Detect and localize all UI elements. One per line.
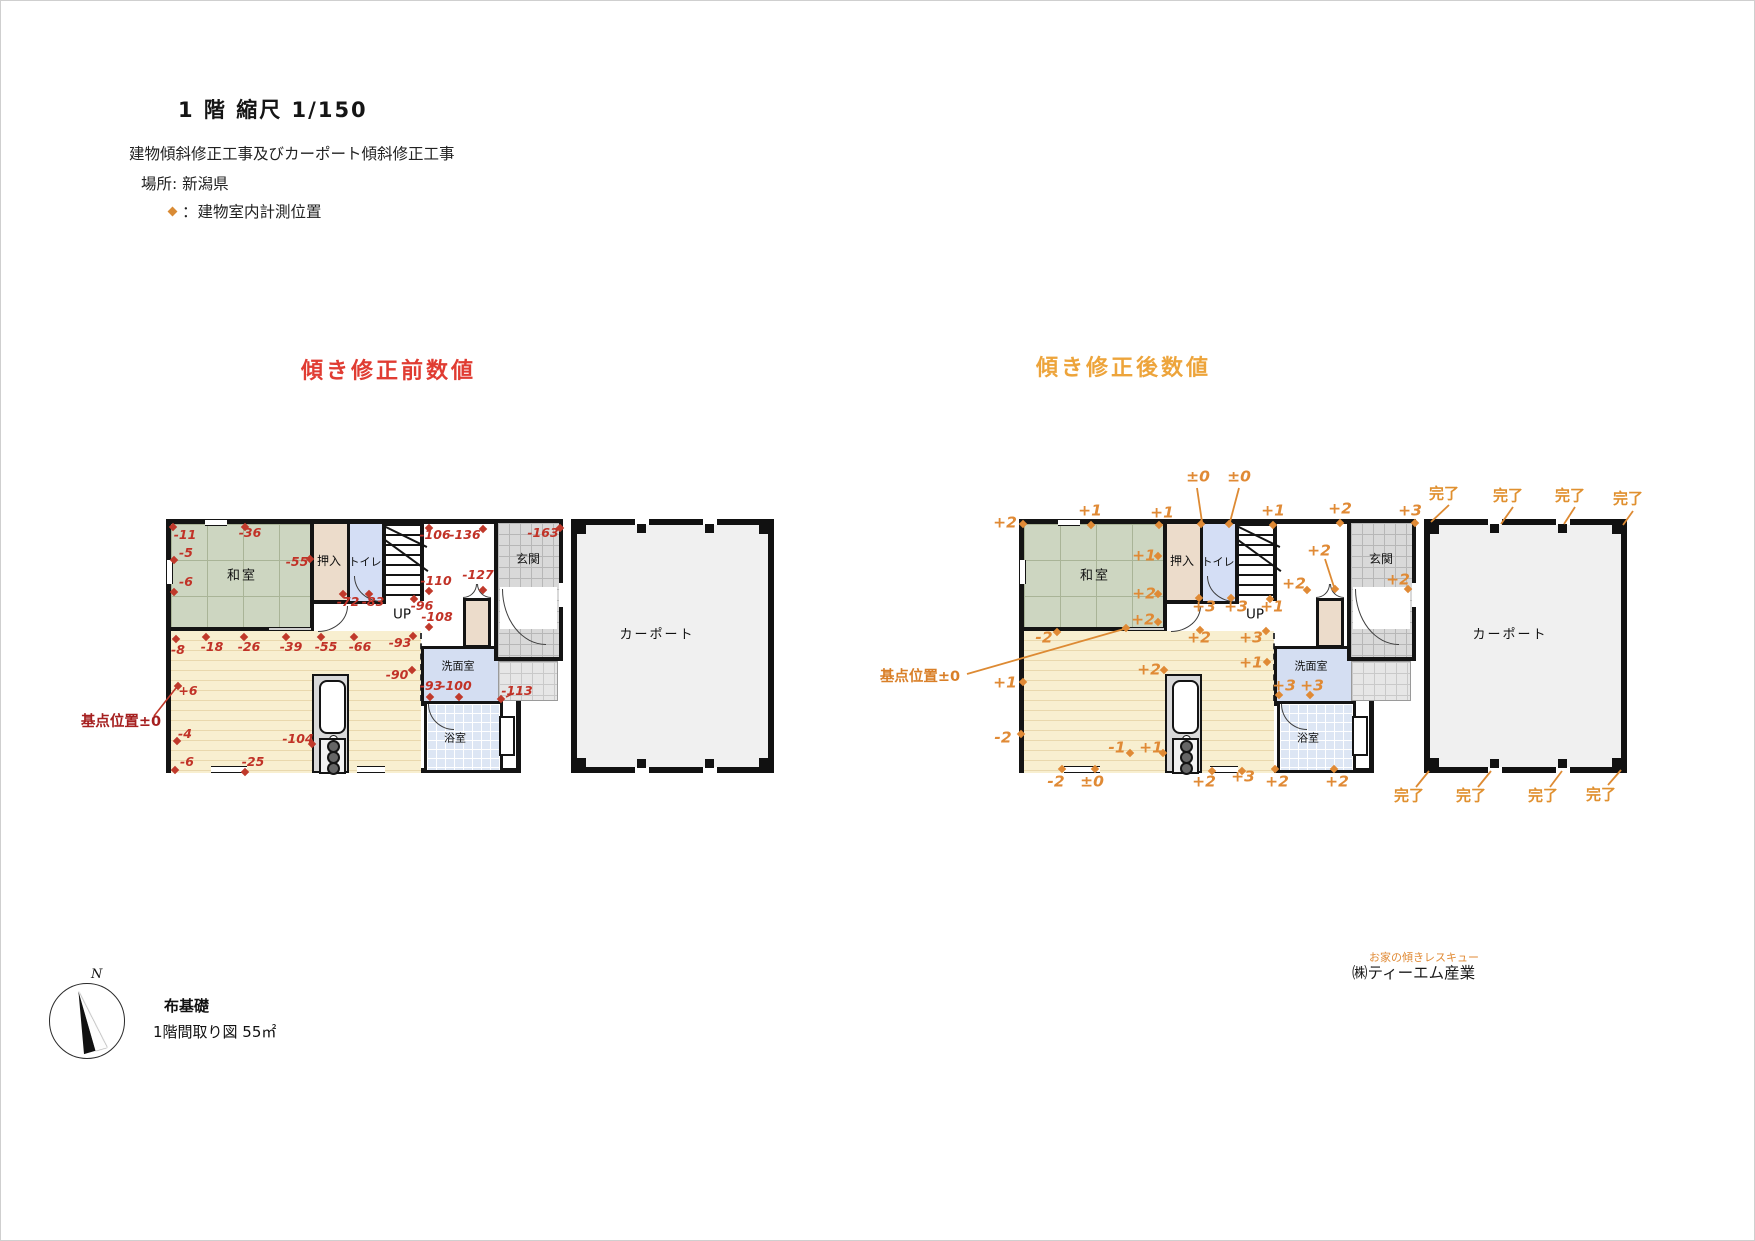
measurement-label: +1: [1078, 503, 1102, 519]
status-label: 完了: [1394, 789, 1424, 804]
measurement-point: [1225, 520, 1233, 528]
measurement-point: [1262, 627, 1270, 635]
measurement-label: -93: [389, 637, 412, 650]
before-plan-title: 傾き修正前数値: [301, 353, 476, 385]
measurement-label: +1: [1260, 599, 1284, 615]
measurement-label: -8: [171, 644, 185, 657]
measurement-point: [1126, 749, 1134, 757]
measurement-label: ±0: [1227, 469, 1251, 485]
north-label: N: [91, 967, 102, 982]
status-label: 完了: [1613, 492, 1643, 507]
measurement-label: -1: [1108, 740, 1125, 756]
plan-annotations: 和室押入トイレUP玄関洗面室浴室カーポート-11-36-5-55-6-106-1…: [166, 519, 776, 773]
measurement-label: -55: [286, 556, 309, 569]
measurement-label: -39: [280, 641, 303, 654]
status-label: 完了: [1493, 489, 1523, 504]
measurement-label: -163: [527, 527, 558, 540]
measurement-point: [426, 693, 434, 701]
measurement-label: +2: [1307, 543, 1331, 559]
measurement-label: +3: [1300, 678, 1324, 694]
measurement-label: -2: [994, 730, 1011, 746]
measurement-label: +1: [993, 675, 1017, 691]
measurement-label: -6: [180, 756, 194, 769]
room-label: 浴室: [444, 733, 466, 744]
measurement-point: [408, 666, 416, 674]
measurement-point: [1303, 586, 1311, 594]
stairs-up-label: UP: [393, 608, 411, 622]
room-label: 玄関: [1369, 553, 1393, 565]
measurement-point: [171, 766, 179, 774]
measurement-point: [1154, 618, 1162, 626]
measurement-point: [1087, 521, 1095, 529]
room-label: 玄関: [516, 553, 540, 565]
measurement-label: +1: [1261, 503, 1285, 519]
measurement-point: [1197, 520, 1205, 528]
measurement-label: -106: [419, 529, 450, 542]
legend-text: ：建物室内計測位置: [182, 200, 322, 222]
measurement-point: [479, 586, 487, 594]
room-label: 和室: [1080, 570, 1110, 583]
measurement-label: -100: [440, 680, 471, 693]
room-label: トイレ: [349, 557, 382, 568]
room-label: 洗面室: [1295, 661, 1328, 672]
measurement-label: +2: [1192, 774, 1216, 790]
measurement-label: +3: [1239, 630, 1263, 646]
measurement-label: +1: [1150, 505, 1174, 521]
measurement-point: [1269, 521, 1277, 529]
measurement-label: +3: [1398, 503, 1422, 519]
measurement-label: -18: [201, 641, 224, 654]
measurement-label: -26: [238, 641, 261, 654]
legend: ：建物室内計測位置: [169, 200, 322, 222]
measurement-point: [1053, 628, 1061, 636]
measurement-point: [1160, 666, 1168, 674]
sheet-title: 1 階 縮尺 1/150: [178, 94, 368, 124]
measurement-label: -66: [349, 641, 372, 654]
measurement-label: -127: [462, 569, 493, 582]
measurement-point: [241, 768, 249, 776]
measurement-label: -2: [1035, 630, 1052, 646]
room-label: カーポート: [619, 629, 694, 642]
status-label: 完了: [1528, 789, 1558, 804]
measurement-point: [170, 588, 178, 596]
measurement-label: +2: [1328, 501, 1352, 517]
measurement-label: +1: [1239, 655, 1263, 671]
measurement-label: -113: [501, 685, 532, 698]
after-plan-title: 傾き修正後数値: [1036, 350, 1211, 382]
measurement-label: +2: [1131, 612, 1155, 628]
measurement-label: +3: [1272, 678, 1296, 694]
measurement-label: +1: [1132, 548, 1156, 564]
leader-line: [1197, 488, 1202, 522]
measurement-label: +2: [1265, 774, 1289, 790]
room-label: 洗面室: [442, 661, 475, 672]
measurement-label: -83: [362, 596, 385, 609]
company-name: ㈱ティーエム産業: [1352, 961, 1475, 983]
room-label: 押入: [1170, 555, 1194, 567]
measurement-label: ±0: [1186, 469, 1210, 485]
drawing-sheet: 1 階 縮尺 1/150 建物傾斜修正工事及びカーポート傾斜修正工事 場所: 新…: [0, 0, 1755, 1241]
compass: [49, 983, 125, 1059]
status-label: 完了: [1456, 789, 1486, 804]
status-label: 完了: [1586, 788, 1616, 803]
measurement-point: [1404, 585, 1412, 593]
leader-line: [1230, 488, 1239, 522]
measurement-point: [1019, 678, 1027, 686]
measurement-point: [1122, 624, 1130, 632]
measurement-label: +3: [1192, 599, 1216, 615]
measurement-label: -90: [386, 669, 409, 682]
measurement-point: [1019, 520, 1027, 528]
room-label: トイレ: [1202, 557, 1235, 568]
status-label: 完了: [1429, 487, 1459, 502]
measurement-point: [425, 623, 433, 631]
measurement-point: [1155, 521, 1163, 529]
measurement-point: [1017, 730, 1025, 738]
measurement-point-icon: [168, 206, 178, 216]
measurement-label: -6: [179, 576, 193, 589]
measurement-label: -110: [420, 575, 451, 588]
measurement-label: -11: [174, 529, 197, 542]
measurement-label: +2: [1325, 774, 1349, 790]
foundation-label: 布基礎: [164, 995, 209, 1016]
status-label: 完了: [1555, 489, 1585, 504]
room-label: カーポート: [1472, 629, 1547, 642]
floor-plan-before: 和室押入トイレUP玄関洗面室浴室カーポート-11-36-5-55-6-106-1…: [166, 519, 776, 773]
measurement-label: +3: [1224, 599, 1248, 615]
measurement-label: -55: [315, 641, 338, 654]
measurement-point: [170, 556, 178, 564]
measurement-label: -93: [420, 680, 443, 693]
measurement-label: -72: [337, 596, 360, 609]
room-label: 浴室: [1297, 733, 1319, 744]
measurement-point: [455, 693, 463, 701]
measurement-label: ±0: [1080, 774, 1104, 790]
project-title: 建物傾斜修正工事及びカーポート傾斜修正工事: [129, 142, 455, 164]
measurement-label: -2: [1047, 774, 1064, 790]
floor-area-label: 1階間取り図 55㎡: [153, 1021, 276, 1042]
measurement-point: [1411, 519, 1419, 527]
measurement-label: +2: [1132, 586, 1156, 602]
measurement-label: +2: [993, 515, 1017, 531]
floor-plan-after: 和室押入トイレUP玄関洗面室浴室カーポート+2+1+1±0±0+1+2+3+1+…: [1019, 519, 1629, 773]
room-label: 和室: [227, 570, 257, 583]
measurement-label: -108: [421, 611, 452, 624]
leader-line: [1478, 771, 1491, 787]
room-label: 押入: [317, 555, 341, 567]
leader-line: [1550, 771, 1562, 787]
measurement-label: -4: [178, 728, 192, 741]
measurement-label: -136: [449, 529, 480, 542]
measurement-label: -25: [242, 756, 265, 769]
measurement-point: [308, 740, 316, 748]
measurement-label: -5: [179, 547, 193, 560]
location-text: 場所: 新潟県: [141, 172, 229, 194]
measurement-point: [1263, 658, 1271, 666]
measurement-point: [1336, 519, 1344, 527]
measurement-point: [425, 587, 433, 595]
base-point-label: 基点位置±0: [880, 670, 960, 685]
plan-annotations: 和室押入トイレUP玄関洗面室浴室カーポート+2+1+1±0±0+1+2+3+1+…: [1019, 519, 1629, 773]
measurement-point: [1331, 585, 1339, 593]
measurement-label: +2: [1137, 662, 1161, 678]
leader-line: [1416, 771, 1429, 787]
base-point-label: 基点位置±0: [81, 715, 161, 730]
